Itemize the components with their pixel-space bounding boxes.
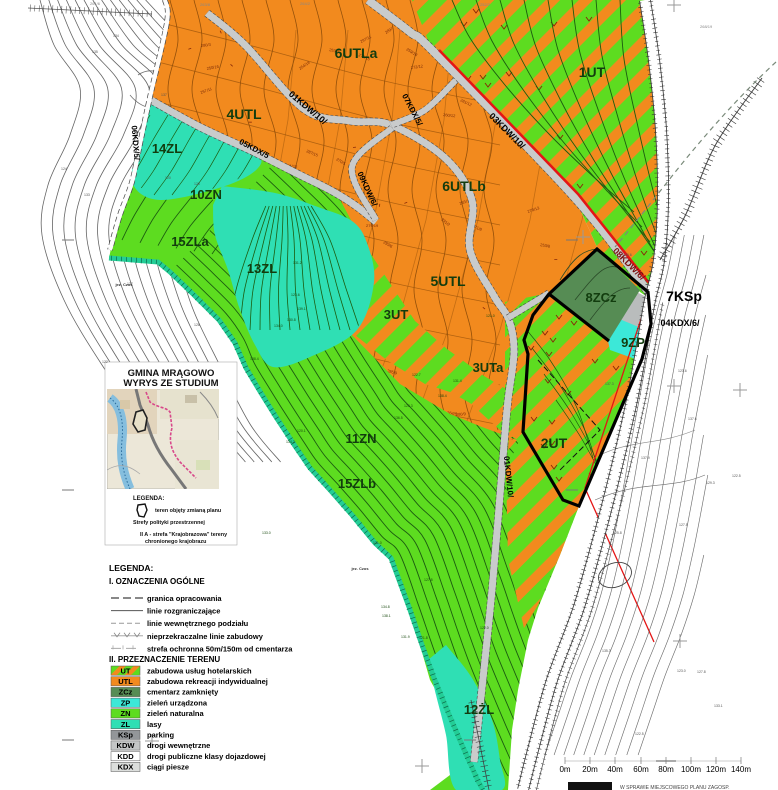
- svg-text:KDW: KDW: [117, 741, 136, 750]
- svg-text:3UTa: 3UTa: [473, 360, 505, 375]
- svg-text:Strefy polityki przestrzennej: Strefy polityki przestrzennej: [133, 520, 205, 526]
- svg-text:7KSp: 7KSp: [666, 288, 702, 304]
- svg-text:261/6: 261/6: [90, 1, 101, 6]
- svg-text:LEGENDA:: LEGENDA:: [109, 563, 154, 573]
- svg-text:15ZLa: 15ZLa: [171, 234, 209, 249]
- svg-text:133.0: 133.0: [262, 531, 271, 535]
- svg-text:100m: 100m: [681, 765, 701, 774]
- svg-text:140m: 140m: [731, 765, 751, 774]
- svg-text:131.4: 131.4: [453, 379, 462, 383]
- svg-text:granica opracowania: granica opracowania: [147, 594, 222, 603]
- svg-text:6UTLa: 6UTLa: [335, 45, 378, 61]
- svg-text:138.4: 138.4: [250, 357, 259, 361]
- svg-text:zieleń urządzona: zieleń urządzona: [147, 698, 208, 707]
- svg-text:5UTL: 5UTL: [431, 273, 466, 289]
- svg-text:268/19: 268/19: [700, 24, 713, 29]
- svg-text:3UT: 3UT: [384, 307, 409, 322]
- svg-text:drogi wewnętrzne: drogi wewnętrzne: [147, 741, 210, 750]
- svg-text:jez. Czos: jez. Czos: [350, 566, 369, 571]
- svg-text:40m: 40m: [607, 765, 623, 774]
- svg-text:W SPRAWIE MIEJSCOWEGO PLANU ZA: W SPRAWIE MIEJSCOWEGO PLANU ZAGOSP.: [620, 785, 729, 790]
- svg-text:131.0: 131.0: [373, 541, 382, 545]
- svg-text:I. OZNACZENIA OGÓLNE: I. OZNACZENIA OGÓLNE: [109, 577, 205, 586]
- svg-text:137: 137: [127, 282, 133, 286]
- svg-text:20m: 20m: [582, 765, 598, 774]
- svg-text:125.3: 125.3: [404, 404, 413, 408]
- svg-text:134.2: 134.2: [286, 440, 295, 444]
- svg-text:120: 120: [165, 176, 171, 180]
- svg-text:135: 135: [92, 50, 98, 54]
- svg-text:2UT: 2UT: [541, 435, 568, 451]
- svg-text:zieleń naturalna: zieleń naturalna: [147, 709, 205, 718]
- svg-text:UT: UT: [121, 666, 131, 675]
- svg-text:122.5: 122.5: [635, 732, 644, 736]
- svg-text:127.8: 127.8: [679, 523, 688, 527]
- svg-text:80m: 80m: [658, 765, 674, 774]
- svg-text:KSp: KSp: [118, 731, 133, 740]
- svg-text:8ZCz: 8ZCz: [585, 290, 617, 305]
- svg-text:ZN: ZN: [121, 709, 131, 718]
- svg-text:139.1: 139.1: [297, 307, 306, 311]
- svg-text:138.4: 138.4: [438, 394, 447, 398]
- svg-text:KDD: KDD: [117, 752, 134, 761]
- svg-text:137.6: 137.6: [688, 417, 697, 421]
- svg-text:135.3: 135.3: [602, 649, 611, 653]
- svg-text:131.9: 131.9: [401, 635, 410, 639]
- svg-text:10ZN: 10ZN: [190, 187, 222, 202]
- svg-text:6UTLb: 6UTLb: [442, 178, 486, 194]
- svg-text:60m: 60m: [633, 765, 649, 774]
- svg-text:138.1: 138.1: [382, 614, 391, 618]
- svg-text:122: 122: [102, 360, 108, 364]
- svg-text:128: 128: [194, 182, 200, 186]
- svg-text:130.8: 130.8: [287, 318, 296, 322]
- svg-text:parking: parking: [147, 731, 175, 740]
- svg-text:II A - strefa "Krajobrazowa" t: II A - strefa "Krajobrazowa" tereny: [140, 532, 227, 538]
- svg-text:04KDX/6/: 04KDX/6/: [660, 318, 700, 328]
- svg-text:123.0: 123.0: [677, 669, 686, 673]
- svg-text:136.5: 136.5: [394, 416, 403, 420]
- svg-text:II. PRZEZNACZENIE TERENU: II. PRZEZNACZENIE TERENU: [109, 655, 220, 664]
- svg-text:122.0: 122.0: [480, 626, 489, 630]
- svg-text:4UTL: 4UTL: [227, 106, 262, 122]
- svg-text:137.9: 137.9: [641, 456, 650, 460]
- svg-text:121.0: 121.0: [486, 314, 495, 318]
- svg-text:strefa ochronna 50m/150m od cm: strefa ochronna 50m/150m od cmentarza: [147, 644, 293, 653]
- svg-text:ciągi piesze: ciągi piesze: [147, 763, 189, 772]
- svg-text:WYRYS ZE STUDIUM: WYRYS ZE STUDIUM: [123, 378, 218, 389]
- svg-text:9ZP: 9ZP: [621, 335, 645, 350]
- svg-text:134.8: 134.8: [381, 605, 390, 609]
- svg-text:123.6: 123.6: [291, 293, 300, 297]
- svg-text:134: 134: [113, 34, 119, 38]
- svg-text:122.5: 122.5: [732, 474, 741, 478]
- svg-text:chronionego krajobrazu: chronionego krajobrazu: [145, 539, 206, 545]
- svg-text:drogi publiczne klasy dojazdow: drogi publiczne klasy dojazdowej: [147, 752, 266, 761]
- svg-text:264/2: 264/2: [300, 1, 311, 6]
- svg-text:linie wewnętrznego podziału: linie wewnętrznego podziału: [147, 619, 249, 628]
- svg-text:130.6: 130.6: [623, 253, 632, 257]
- svg-text:cmentarz zamknięty: cmentarz zamknięty: [147, 688, 219, 697]
- svg-text:13ZL: 13ZL: [247, 261, 277, 276]
- svg-text:128: 128: [194, 323, 200, 327]
- svg-text:252/2: 252/2: [480, 2, 491, 7]
- svg-text:lasy: lasy: [147, 720, 162, 729]
- svg-text:UTL: UTL: [118, 677, 133, 686]
- svg-text:120.1: 120.1: [297, 429, 306, 433]
- svg-text:KDX: KDX: [118, 763, 134, 772]
- svg-text:zabudowa rekreacji indywidualn: zabudowa rekreacji indywidualnej: [147, 677, 268, 686]
- svg-text:0m: 0m: [559, 765, 570, 774]
- svg-text:zabudowa usług hotelarskich: zabudowa usług hotelarskich: [147, 666, 252, 675]
- svg-text:134.0: 134.0: [274, 324, 283, 328]
- svg-text:ZP: ZP: [121, 698, 131, 707]
- svg-text:14ZL: 14ZL: [152, 141, 182, 156]
- svg-text:125.8: 125.8: [613, 531, 622, 535]
- svg-text:120m: 120m: [706, 765, 726, 774]
- svg-text:ZCz: ZCz: [119, 688, 133, 697]
- svg-text:1UT: 1UT: [579, 64, 606, 80]
- svg-text:127.8: 127.8: [697, 670, 706, 674]
- svg-text:123.6: 123.6: [678, 369, 687, 373]
- svg-text:133: 133: [84, 193, 90, 197]
- svg-text:137: 137: [161, 93, 167, 97]
- svg-text:127.5: 127.5: [424, 578, 433, 582]
- svg-text:121.8: 121.8: [419, 636, 428, 640]
- svg-text:263/8: 263/8: [200, 2, 211, 7]
- svg-text:11ZN: 11ZN: [345, 431, 376, 446]
- svg-text:linie rozgraniczające: linie rozgraniczające: [147, 607, 220, 616]
- svg-text:12ŻL: 12ŻL: [464, 702, 494, 717]
- svg-text:131.2: 131.2: [293, 261, 302, 265]
- svg-text:133.1: 133.1: [714, 704, 723, 708]
- svg-text:teren objęty zmianą planu: teren objęty zmianą planu: [155, 508, 221, 514]
- svg-text:LEGENDA:: LEGENDA:: [133, 496, 164, 502]
- svg-text:137.3: 137.3: [605, 382, 614, 386]
- svg-text:124: 124: [61, 167, 67, 171]
- svg-text:nieprzekraczalne linie zabudow: nieprzekraczalne linie zabudowy: [147, 632, 264, 641]
- svg-text:280/9: 280/9: [456, 411, 467, 417]
- svg-text:129.3: 129.3: [706, 481, 715, 485]
- svg-text:ZL: ZL: [121, 720, 131, 729]
- svg-text:122.7: 122.7: [412, 373, 421, 377]
- svg-text:15ZLb: 15ZLb: [338, 476, 376, 491]
